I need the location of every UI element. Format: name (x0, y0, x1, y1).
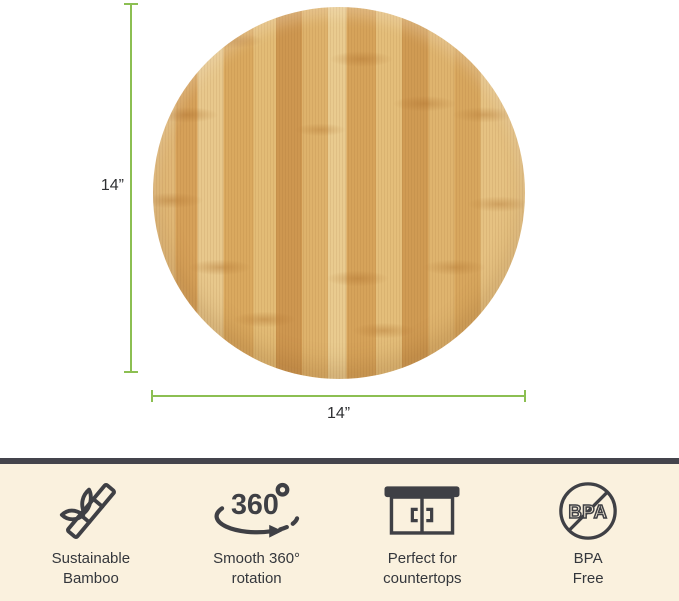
bpa-free-icon-text: BPA (569, 501, 608, 522)
width-dimension-cap-right (524, 390, 526, 402)
feature-label-perfect-for-countertops: Perfect for countertops (383, 549, 461, 588)
feature-label-sustainable-bamboo: Sustainable Bamboo (52, 549, 130, 588)
bamboo-lazy-susan-photo (153, 7, 525, 379)
rotation-360-icon: 360 (206, 476, 308, 546)
width-dimension-line (152, 395, 525, 397)
width-dimension-cap-left (151, 390, 153, 402)
feature-perfect-for-countertops: Perfect for countertops (340, 476, 506, 601)
feature-bpa-free: BPA BPA Free (505, 476, 671, 601)
rotation-360-icon-text: 360 (231, 489, 279, 521)
height-dimension-line (130, 4, 132, 372)
height-dimension-label: 14” (88, 177, 124, 195)
feature-label-bpa-free: BPA Free (573, 549, 604, 588)
feature-bar: Sustainable Bamboo 360 Smooth 360° rotat… (0, 458, 679, 601)
height-dimension-cap-bottom (124, 371, 138, 373)
width-dimension-label: 14” (152, 405, 525, 423)
product-image: 14” 14” Sustain (0, 0, 679, 601)
bpa-free-icon: BPA (556, 476, 620, 546)
countertop-icon (381, 476, 463, 546)
height-dimension-cap-top (124, 3, 138, 5)
feature-label-smooth-rotation: Smooth 360° rotation (213, 549, 300, 588)
feature-smooth-rotation: 360 Smooth 360° rotation (174, 476, 340, 601)
feature-sustainable-bamboo: Sustainable Bamboo (8, 476, 174, 601)
bamboo-icon (57, 476, 125, 546)
